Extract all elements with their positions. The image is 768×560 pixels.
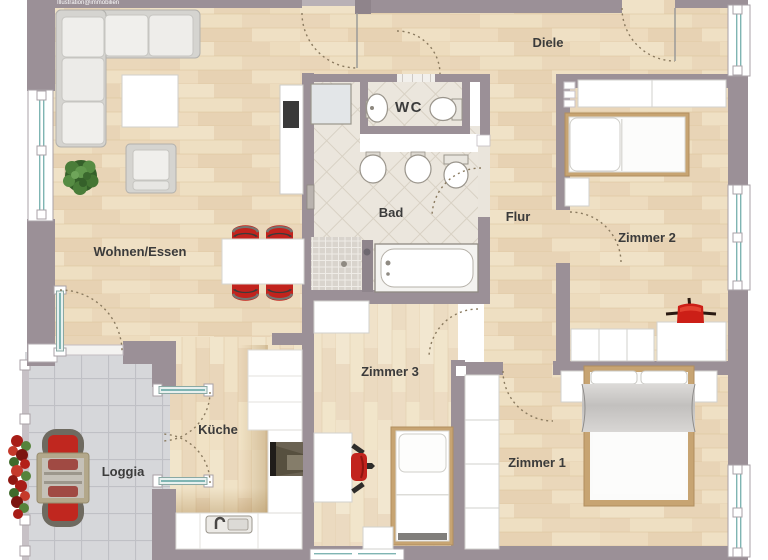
svg-text:Zimmer 3: Zimmer 3 — [361, 364, 419, 379]
svg-text:Küche: Küche — [198, 422, 238, 437]
svg-text:Illustration@immobilien: Illustration@immobilien — [57, 0, 119, 6]
svg-text:Diele: Diele — [532, 35, 563, 50]
svg-text:Loggia: Loggia — [102, 464, 145, 479]
svg-text:Bad: Bad — [379, 205, 404, 220]
svg-text:Flur: Flur — [506, 209, 531, 224]
svg-text:Zimmer 1: Zimmer 1 — [508, 455, 566, 470]
svg-text:Zimmer 2: Zimmer 2 — [618, 230, 676, 245]
svg-text:Wohnen/Essen: Wohnen/Essen — [94, 244, 187, 259]
svg-text:WC: WC — [395, 99, 423, 116]
